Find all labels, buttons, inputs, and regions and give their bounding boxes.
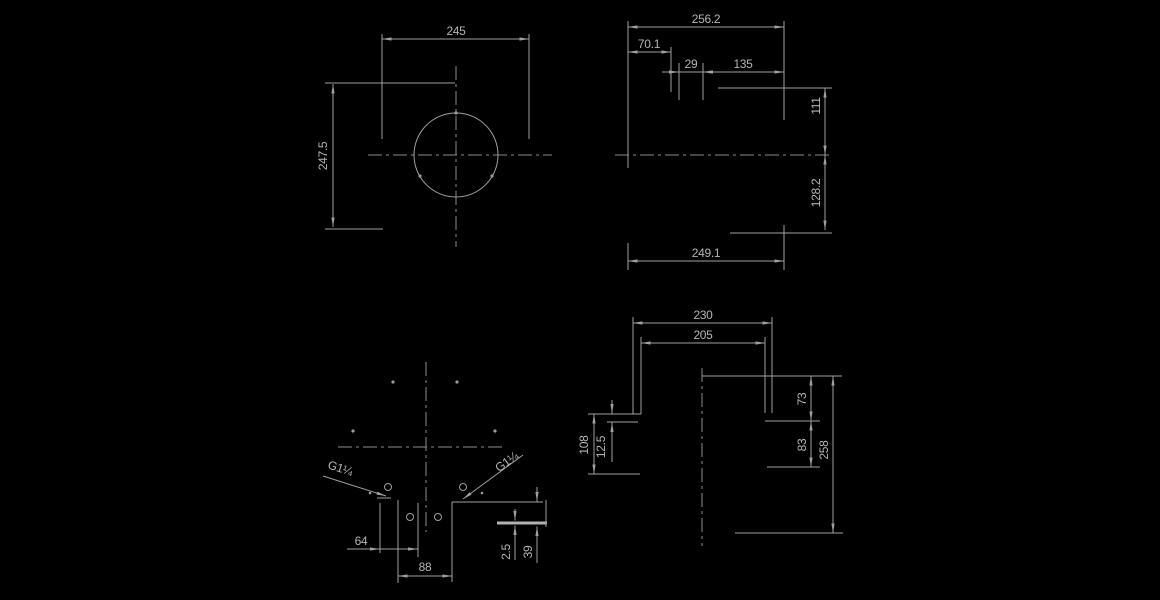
dim-256-2-label: 256.2: [692, 12, 721, 26]
technical-drawing: 245 247.5 256.2 70.1 29 135: [0, 0, 1160, 600]
dim-2-5-label: 2.5: [499, 543, 513, 559]
dim-258-label: 258: [817, 440, 831, 460]
dim-205-label: 205: [693, 328, 713, 342]
dim-70-1-label: 70.1: [638, 37, 661, 51]
flange-top-view: 245 247.5: [316, 24, 552, 247]
dim-135-label: 135: [733, 57, 753, 71]
dim-73-label: 73: [795, 392, 809, 405]
thread-label-left: G1¼: [326, 458, 355, 479]
dim-29-label: 29: [685, 57, 698, 71]
thread-port-left-circle: [385, 484, 392, 491]
bracket-section-view: 230 205 12.5 108 73 83 258: [577, 308, 843, 546]
thread-label-right: G1¼: [492, 448, 522, 475]
dim-249-1-label: 249.1: [692, 246, 721, 260]
thread-port-right-circle: [460, 484, 467, 491]
flange-side-view: 256.2 70.1 29 135 111 128.2 249.1: [615, 12, 833, 270]
dim-111-label: 111: [809, 97, 823, 115]
dim-247-5-label: 247.5: [316, 141, 330, 170]
dim-230-label: 230: [693, 308, 713, 322]
dim-64-label: 64: [355, 534, 368, 548]
drawing-canvas: 245 247.5 256.2 70.1 29 135: [0, 0, 1160, 600]
dim-128-2-label: 128.2: [809, 178, 823, 207]
dim-39-label: 39: [521, 545, 535, 558]
bracket-bottom-view: G1¼ G1¼ 64 88 2.5 39: [323, 362, 547, 583]
dim-83-label: 83: [795, 438, 809, 451]
dim-108-label: 108: [577, 435, 591, 455]
dim-88-label: 88: [419, 560, 432, 574]
dim-245-label: 245: [446, 24, 466, 38]
dim-12-5-label: 12.5: [594, 435, 608, 458]
